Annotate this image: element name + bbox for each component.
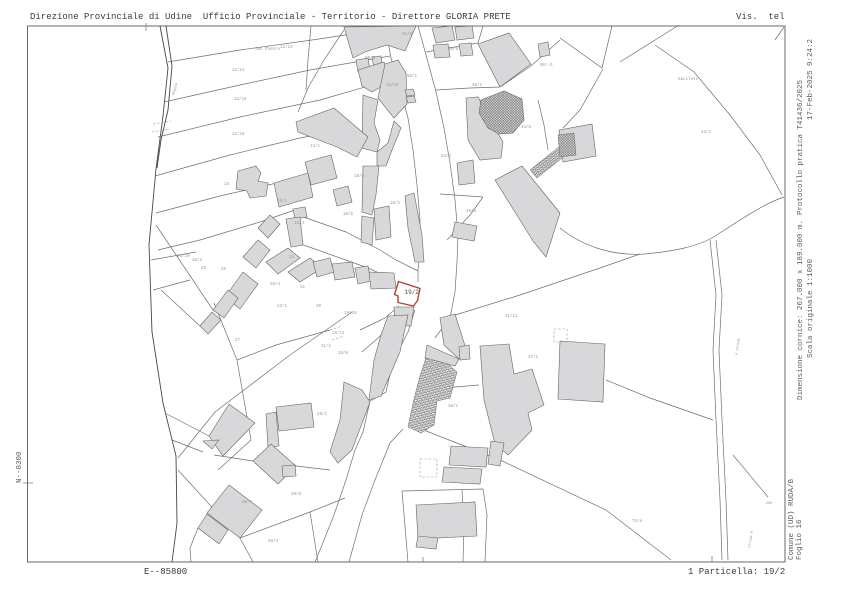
svg-text:25: 25	[221, 268, 227, 272]
svg-text:Scala originale 1:1000: Scala originale 1:1000	[807, 258, 815, 358]
svg-text:a strada: a strada	[734, 338, 742, 355]
svg-text:12/16: 12/16	[234, 97, 247, 102]
svg-text:16/1: 16/1	[277, 199, 288, 204]
svg-text:strada B: strada B	[747, 531, 755, 548]
svg-text:19/11: 19/11	[332, 331, 345, 336]
svg-text:50/1: 50/1	[407, 74, 418, 79]
svg-text:75/a: 75/a	[632, 519, 643, 524]
svg-text:43/2: 43/2	[701, 130, 712, 135]
svg-text:Dimensione cornice: 267.000 x: Dimensione cornice: 267.000 x 189.000 m.	[797, 220, 805, 400]
svg-text:Protocollo pratica T41436/2025: Protocollo pratica T41436/2025	[797, 79, 805, 215]
svg-text:43/5: 43/5	[521, 125, 532, 130]
svg-text:16/3: 16/3	[294, 221, 305, 226]
svg-text:18/5: 18/5	[343, 212, 354, 217]
svg-text:Comune (UD) RUDA/B: Comune (UD) RUDA/B	[788, 478, 796, 560]
svg-text:Foglio 16: Foglio 16	[796, 519, 804, 560]
svg-text:50/3: 50/3	[365, 56, 376, 61]
svg-text:48/2: 48/2	[472, 83, 483, 88]
svg-text:N--8300: N--8300	[16, 451, 24, 483]
svg-text:12/18: 12/18	[232, 132, 245, 137]
svg-text:22/1: 22/1	[277, 304, 288, 309]
svg-text:50/-b: 50/-b	[540, 63, 553, 68]
svg-text:37/1: 37/1	[528, 355, 539, 360]
svg-text:20/8: 20/8	[291, 492, 302, 497]
svg-text:17-Feb-2025 9:24:2: 17-Feb-2025 9:24:2	[807, 39, 815, 120]
svg-text:E--85800: E--85800	[144, 567, 187, 577]
svg-text:52/8: 52/8	[402, 32, 413, 37]
svg-text:27: 27	[235, 339, 241, 343]
svg-text:12/13: 12/13	[280, 45, 293, 50]
svg-text:53/3: 53/3	[441, 154, 452, 159]
svg-text:12/14: 12/14	[232, 68, 245, 73]
svg-text:1 Particella: 19/2: 1 Particella: 19/2	[688, 567, 785, 577]
svg-text:Roggia: Roggia	[171, 82, 179, 95]
svg-text:26/3: 26/3	[192, 258, 203, 263]
svg-text:28/3: 28/3	[268, 539, 279, 544]
svg-text:23: 23	[289, 256, 295, 260]
svg-text:12/15: 12/15	[386, 83, 399, 88]
svg-text:28/1: 28/1	[317, 412, 328, 417]
svg-text:31/1: 31/1	[321, 344, 332, 349]
svg-text:50/9: 50/9	[448, 47, 459, 52]
svg-text:26: 26	[201, 267, 207, 271]
svg-text:28/4: 28/4	[242, 500, 253, 505]
svg-text:21: 21	[300, 286, 306, 290]
svg-text:Vis. tel: Vis. tel	[736, 12, 785, 22]
svg-text:Direzione Provinciale di Udine: Direzione Provinciale di Udine Ufficio P…	[30, 12, 511, 22]
svg-text:20: 20	[316, 305, 322, 309]
svg-text:19/10: 19/10	[344, 311, 357, 316]
svg-text:38/1: 38/1	[448, 404, 459, 409]
svg-text:18/2: 18/2	[390, 201, 401, 206]
svg-text:560: 560	[766, 502, 772, 506]
svg-text:18/8: 18/8	[354, 174, 365, 179]
svg-text:19/2: 19/2	[405, 289, 420, 296]
svg-text:26/10: 26/10	[177, 254, 190, 259]
svg-text:41/12: 41/12	[505, 314, 518, 319]
svg-text:20/4: 20/4	[270, 282, 281, 287]
svg-text:15: 15	[224, 183, 230, 187]
svg-text:San Pietro: San Pietro	[255, 47, 281, 52]
svg-text:19/8: 19/8	[338, 351, 349, 356]
svg-text:Sacileto: Sacileto	[678, 77, 699, 82]
svg-text:40/6: 40/6	[466, 209, 477, 214]
svg-text:13/1: 13/1	[310, 144, 321, 149]
